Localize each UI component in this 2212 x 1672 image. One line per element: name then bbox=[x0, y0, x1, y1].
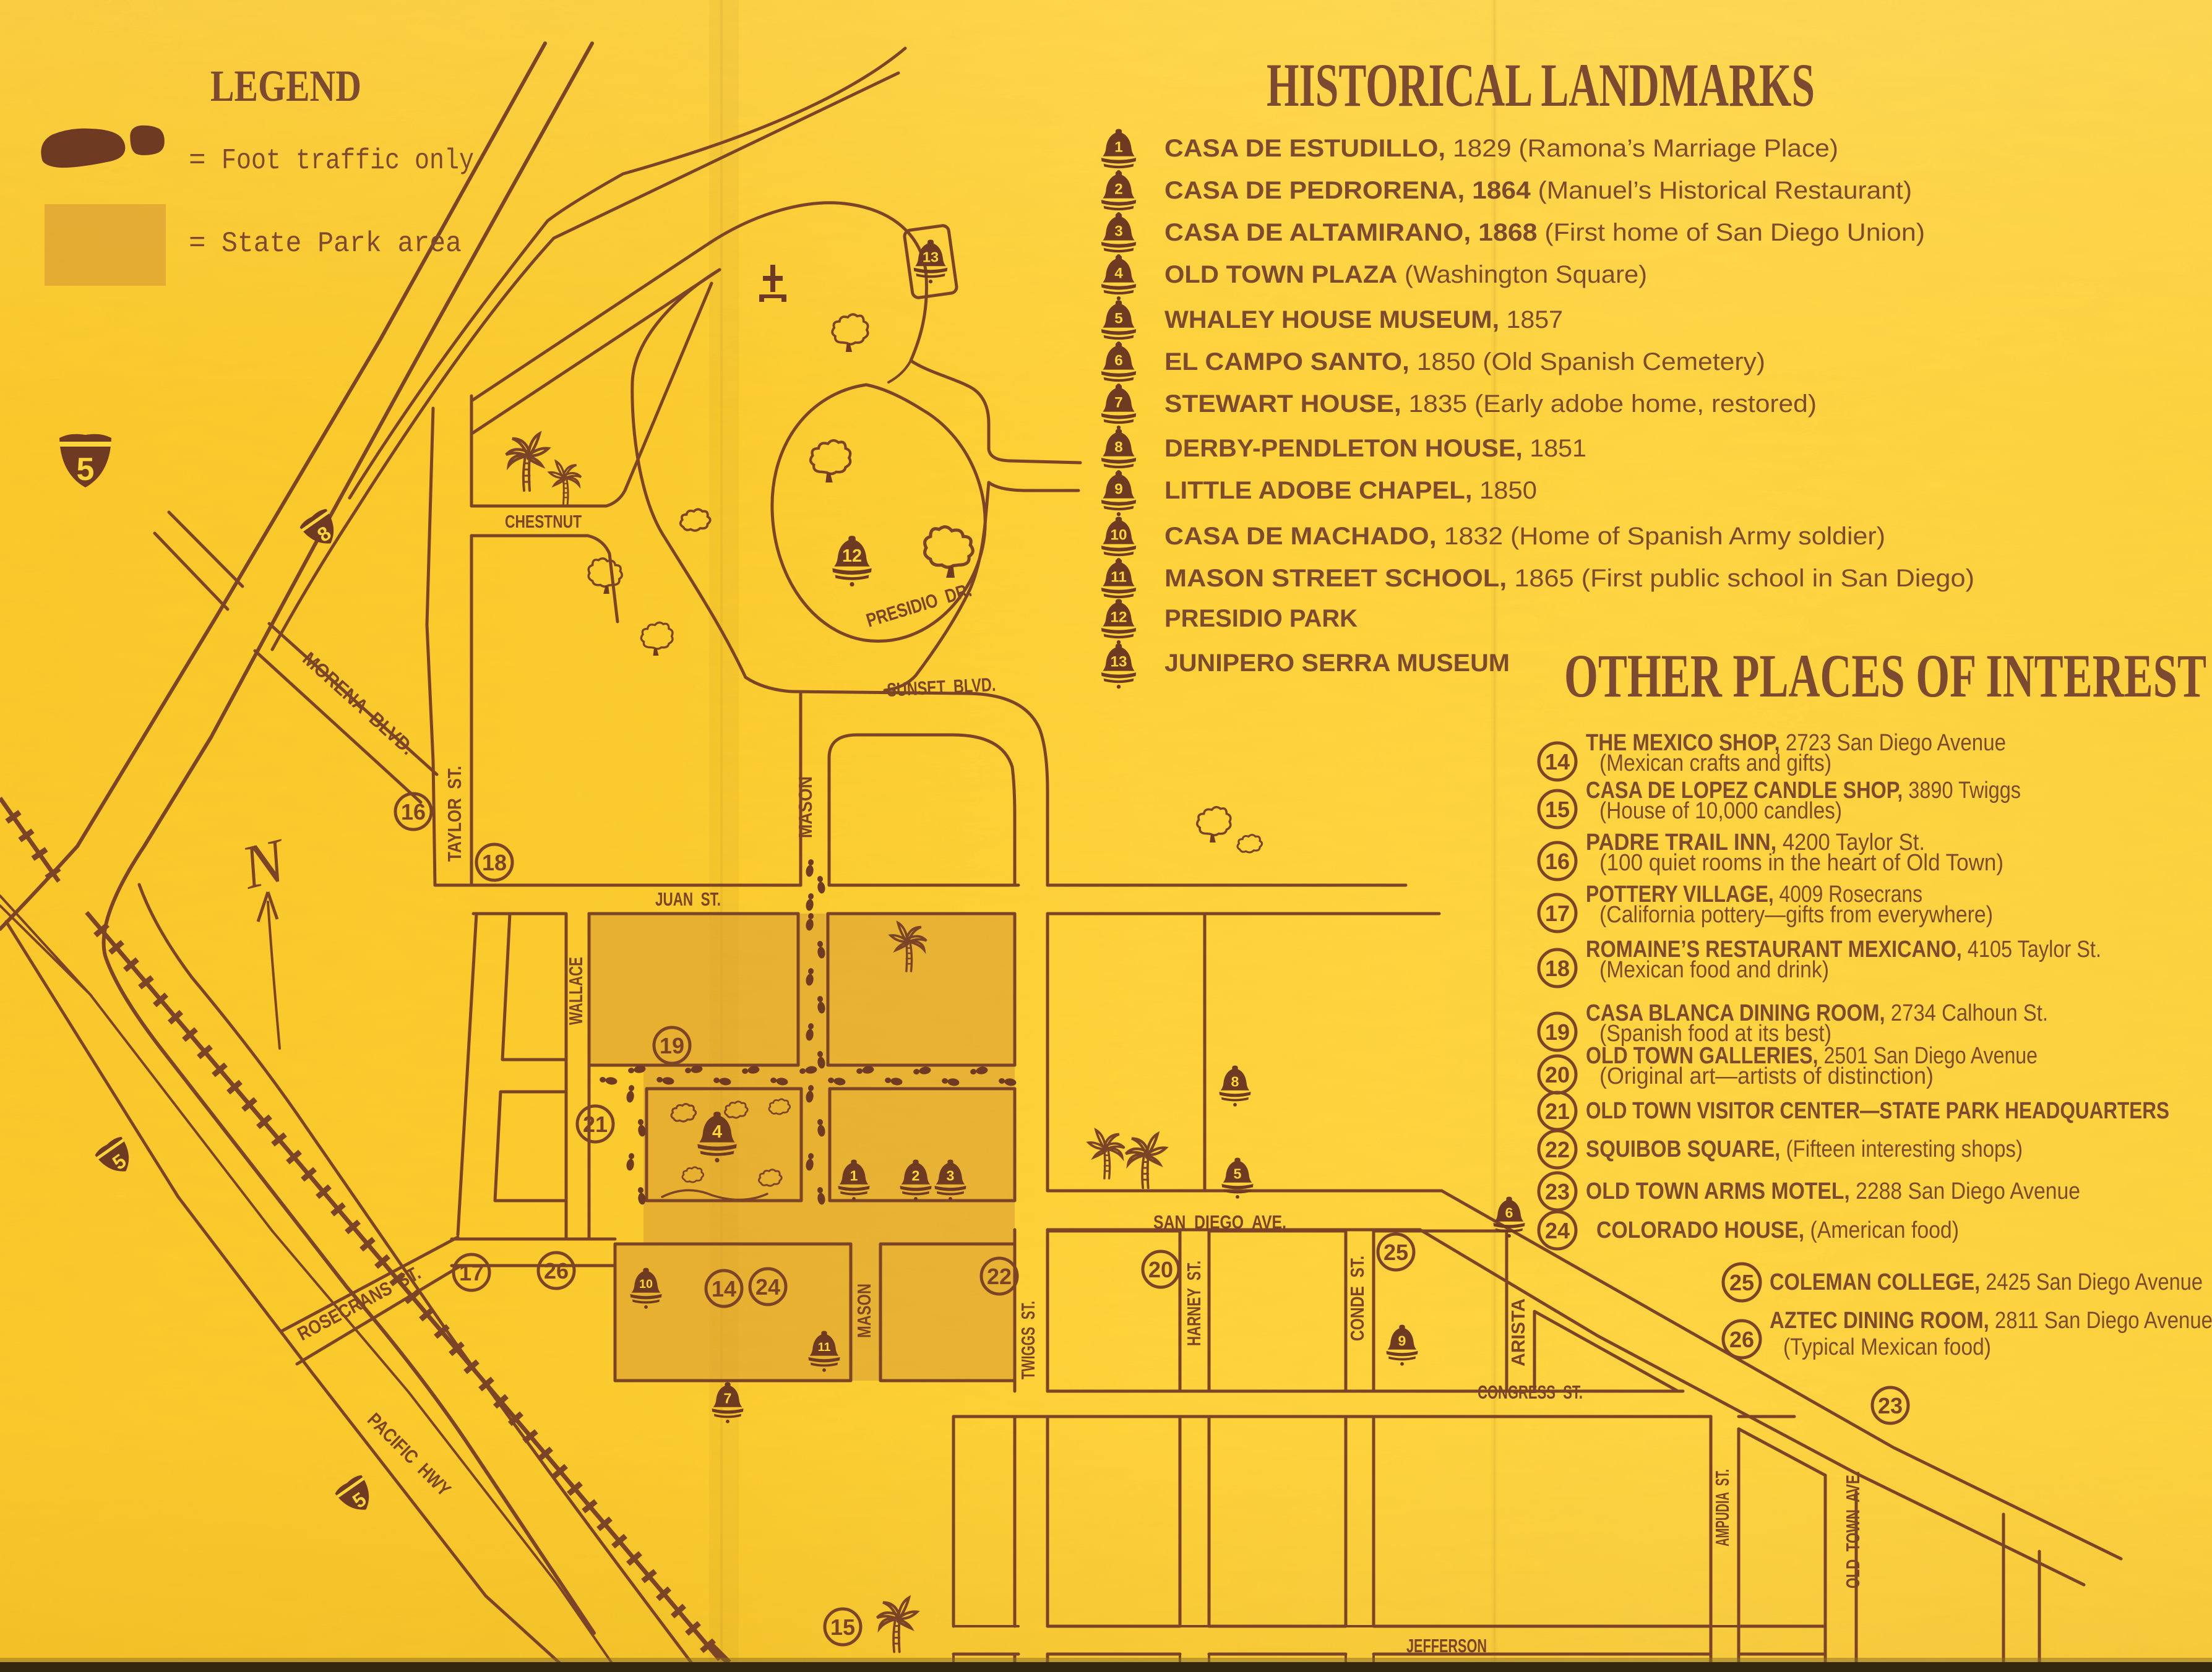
svg-text:5: 5 bbox=[1114, 311, 1123, 327]
svg-text:10: 10 bbox=[1110, 527, 1127, 544]
svg-text:LITTLE ADOBE CHAPEL, 1850: LITTLE ADOBE CHAPEL, 1850 bbox=[1164, 477, 1537, 504]
svg-text:23: 23 bbox=[1545, 1179, 1570, 1204]
svg-text:JUNIPERO SERRA MUSEUM: JUNIPERO SERRA MUSEUM bbox=[1164, 650, 1510, 677]
svg-text:25: 25 bbox=[1729, 1270, 1754, 1295]
svg-text:(Mexican food and drink): (Mexican food and drink) bbox=[1599, 957, 1829, 983]
svg-text:DERBY-PENDLETON HOUSE, 1851: DERBY-PENDLETON HOUSE, 1851 bbox=[1164, 435, 1586, 462]
svg-text:12: 12 bbox=[842, 546, 862, 566]
svg-text:21: 21 bbox=[583, 1112, 608, 1137]
svg-text:CHESTNUT: CHESTNUT bbox=[505, 512, 582, 532]
svg-text:22: 22 bbox=[1545, 1137, 1570, 1162]
svg-text:(Mexican crafts and gifts): (Mexican crafts and gifts) bbox=[1599, 750, 1831, 776]
svg-text:15: 15 bbox=[830, 1614, 855, 1640]
svg-text:(House of 10,000 candles): (House of 10,000 candles) bbox=[1599, 798, 1842, 824]
svg-text:EL CAMPO SANTO, 1850 (Old Span: EL CAMPO SANTO, 1850 (Old Spanish Cemete… bbox=[1164, 348, 1765, 375]
svg-text:WALLACE: WALLACE bbox=[565, 957, 587, 1025]
svg-text:17: 17 bbox=[1545, 901, 1570, 926]
svg-text:MASON: MASON bbox=[853, 1284, 875, 1338]
svg-text:STEWART HOUSE, 1835 (Early ado: STEWART HOUSE, 1835 (Early adobe home, r… bbox=[1164, 390, 1817, 418]
svg-text:16: 16 bbox=[401, 799, 426, 825]
svg-text:18: 18 bbox=[1545, 956, 1570, 981]
svg-text:(Original art—artists of disti: (Original art—artists of distinction) bbox=[1599, 1063, 1934, 1089]
svg-text:21: 21 bbox=[1545, 1099, 1570, 1124]
svg-text:20: 20 bbox=[1148, 1257, 1173, 1282]
svg-text:WHALEY HOUSE MUSEUM, 1857: WHALEY HOUSE MUSEUM, 1857 bbox=[1164, 306, 1563, 333]
svg-text:26: 26 bbox=[544, 1258, 569, 1284]
svg-text:OLD TOWN VISITOR CENTER—STATE: OLD TOWN VISITOR CENTER—STATE PARK HEADQ… bbox=[1586, 1098, 2169, 1124]
svg-text:HARNEY ST.: HARNEY ST. bbox=[1183, 1261, 1205, 1346]
svg-text:17: 17 bbox=[459, 1260, 484, 1285]
svg-text:=: = bbox=[189, 145, 206, 177]
svg-text:20: 20 bbox=[1545, 1062, 1570, 1087]
svg-text:COLORADO HOUSE, (American food: COLORADO HOUSE, (American food) bbox=[1596, 1217, 1959, 1243]
svg-text:(Typical Mexican food): (Typical Mexican food) bbox=[1783, 1334, 1991, 1360]
svg-text:11: 11 bbox=[1111, 569, 1127, 586]
svg-text:ARISTA: ARISTA bbox=[1507, 1298, 1529, 1366]
svg-text:(California pottery—gifts from: (California pottery—gifts from everywher… bbox=[1599, 902, 1993, 928]
svg-text:24: 24 bbox=[755, 1274, 780, 1300]
svg-text:State Park area: State Park area bbox=[222, 228, 462, 260]
svg-text:CONGRESS ST.: CONGRESS ST. bbox=[1478, 1381, 1583, 1403]
svg-text:22: 22 bbox=[987, 1264, 1012, 1289]
svg-text:19: 19 bbox=[1545, 1019, 1570, 1045]
svg-text:4: 4 bbox=[712, 1122, 722, 1142]
svg-text:7: 7 bbox=[724, 1390, 732, 1406]
svg-text:SQUIBOB SQUARE, (Fifteen inter: SQUIBOB SQUARE, (Fifteen interesting sho… bbox=[1586, 1136, 2023, 1162]
svg-text:OLD TOWN AVE.: OLD TOWN AVE. bbox=[1842, 1471, 1864, 1588]
svg-text:CASA DE ESTUDILLO, 1829 (Ramon: CASA DE ESTUDILLO, 1829 (Ramona’s Marria… bbox=[1164, 135, 1838, 162]
svg-text:5: 5 bbox=[1234, 1165, 1242, 1181]
svg-text:(100 quiet rooms in the heart: (100 quiet rooms in the heart of Old Tow… bbox=[1599, 850, 2003, 876]
svg-text:HISTORICAL LANDMARKS: HISTORICAL LANDMARKS bbox=[1267, 51, 1815, 119]
svg-text:1: 1 bbox=[850, 1167, 858, 1183]
svg-text:6: 6 bbox=[1505, 1204, 1513, 1220]
svg-text:AZTEC DINING ROOM, 2811 San Di: AZTEC DINING ROOM, 2811 San Diego Avenue bbox=[1770, 1308, 2212, 1334]
svg-text:3: 3 bbox=[1114, 223, 1123, 240]
svg-text:7: 7 bbox=[1114, 395, 1123, 411]
svg-text:8: 8 bbox=[1114, 439, 1123, 456]
svg-text:PRESIDIO PARK: PRESIDIO PARK bbox=[1164, 605, 1358, 632]
svg-text:13: 13 bbox=[1110, 654, 1127, 671]
svg-text:8: 8 bbox=[1231, 1073, 1239, 1089]
svg-text:4: 4 bbox=[1114, 265, 1123, 282]
svg-text:=: = bbox=[189, 228, 206, 260]
svg-text:26: 26 bbox=[1729, 1327, 1754, 1352]
svg-text:12: 12 bbox=[1110, 609, 1127, 626]
svg-text:15: 15 bbox=[1545, 797, 1570, 822]
svg-text:9: 9 bbox=[1398, 1332, 1406, 1348]
svg-text:14: 14 bbox=[1545, 749, 1570, 774]
svg-text:JEFFERSON: JEFFERSON bbox=[1406, 1635, 1487, 1657]
svg-text:14: 14 bbox=[712, 1276, 736, 1301]
svg-text:9: 9 bbox=[1114, 481, 1123, 498]
svg-text:CASA DE MACHADO, 1832 (Home of: CASA DE MACHADO, 1832 (Home of Spanish A… bbox=[1164, 523, 1885, 550]
svg-text:16: 16 bbox=[1545, 849, 1570, 874]
svg-text:OTHER PLACES OF INTEREST: OTHER PLACES OF INTEREST bbox=[1564, 641, 2206, 710]
svg-text:MASON: MASON bbox=[794, 776, 816, 838]
svg-text:LEGEND: LEGEND bbox=[210, 61, 361, 111]
svg-text:19: 19 bbox=[660, 1033, 684, 1058]
svg-text:SAN DIEGO AVE.: SAN DIEGO AVE. bbox=[1153, 1211, 1286, 1233]
svg-text:AMPUDIA ST.: AMPUDIA ST. bbox=[1711, 1469, 1733, 1546]
svg-text:2: 2 bbox=[912, 1167, 920, 1183]
svg-text:Foot traffic only: Foot traffic only bbox=[222, 145, 474, 177]
svg-text:5: 5 bbox=[77, 452, 95, 487]
svg-text:CASA DE ALTAMIRANO, 1868 (Firs: CASA DE ALTAMIRANO, 1868 (First home of … bbox=[1164, 219, 1925, 246]
svg-text:OLD TOWN ARMS MOTEL, 2288 San: OLD TOWN ARMS MOTEL, 2288 San Diego Aven… bbox=[1586, 1178, 2080, 1204]
svg-text:MASON STREET SCHOOL, 1865 (Fir: MASON STREET SCHOOL, 1865 (First public … bbox=[1164, 565, 1974, 592]
svg-text:6: 6 bbox=[1114, 353, 1123, 369]
svg-text:10: 10 bbox=[639, 1277, 653, 1291]
svg-text:3: 3 bbox=[947, 1167, 955, 1183]
svg-text:25: 25 bbox=[1384, 1240, 1408, 1265]
svg-text:13: 13 bbox=[923, 249, 939, 265]
svg-text:JUAN ST.: JUAN ST. bbox=[655, 888, 721, 910]
svg-text:11: 11 bbox=[818, 1340, 831, 1354]
svg-text:CONDE ST.: CONDE ST. bbox=[1346, 1256, 1368, 1341]
svg-text:CASA DE PEDRORENA, 1864 (Manue: CASA DE PEDRORENA, 1864 (Manuel’s Histor… bbox=[1164, 177, 1912, 204]
svg-text:TAYLOR ST.: TAYLOR ST. bbox=[444, 766, 465, 862]
svg-text:18: 18 bbox=[482, 850, 507, 875]
svg-text:2: 2 bbox=[1114, 181, 1123, 198]
svg-text:OLD TOWN PLAZA (Washington Squ: OLD TOWN PLAZA (Washington Square) bbox=[1164, 261, 1647, 288]
svg-text:COLEMAN COLLEGE, 2425 San Dieg: COLEMAN COLLEGE, 2425 San Diego Avenue bbox=[1770, 1269, 2203, 1295]
svg-text:1: 1 bbox=[1114, 139, 1123, 156]
svg-text:TWIGGS ST.: TWIGGS ST. bbox=[1017, 1301, 1039, 1379]
svg-text:24: 24 bbox=[1545, 1218, 1570, 1243]
svg-text:23: 23 bbox=[1878, 1393, 1903, 1418]
